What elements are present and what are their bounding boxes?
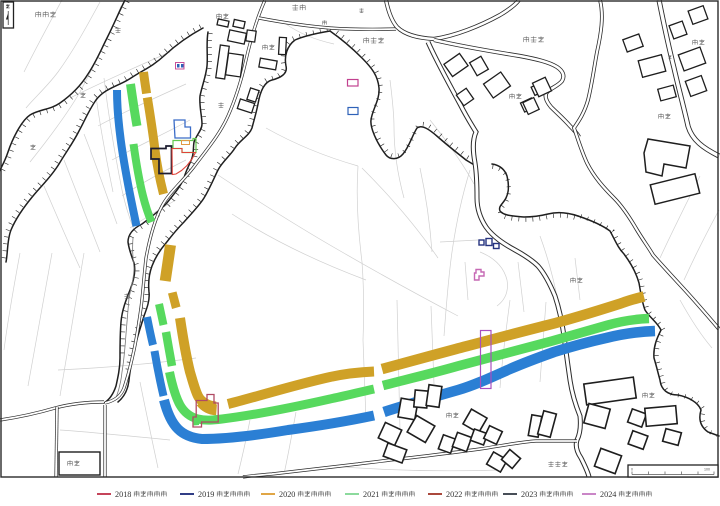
svg-text:2020: 2020 [279, 490, 295, 499]
svg-text:2021: 2021 [363, 490, 379, 499]
svg-text:2018: 2018 [115, 490, 131, 499]
svg-text:2022: 2022 [446, 490, 462, 499]
svg-text:2024: 2024 [600, 490, 616, 499]
svg-text:100: 100 [704, 468, 710, 472]
svg-text:0: 0 [631, 468, 633, 472]
svg-text:2023: 2023 [521, 490, 537, 499]
svg-text:2019: 2019 [198, 490, 214, 499]
